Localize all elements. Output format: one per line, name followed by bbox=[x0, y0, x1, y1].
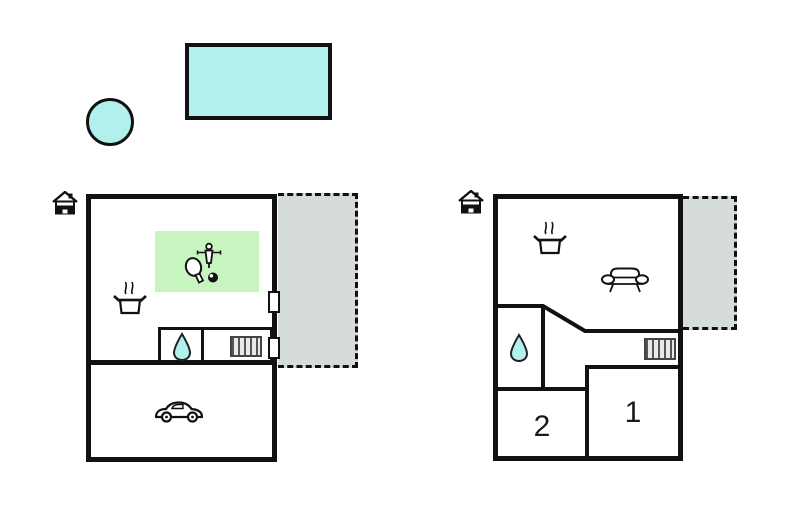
water-drop-icon bbox=[508, 333, 530, 363]
table-tennis-paddle-icon bbox=[184, 256, 203, 282]
room-label-1: 1 bbox=[618, 398, 648, 428]
room-label-2: 2 bbox=[527, 412, 557, 442]
terrace-door bbox=[268, 337, 280, 359]
swimming-pool bbox=[185, 43, 332, 120]
billiard-ball-icon bbox=[208, 273, 218, 283]
game-room-icons bbox=[184, 241, 222, 287]
house-entrance-icon bbox=[458, 190, 484, 214]
floor-plan-canvas: 1 2 bbox=[0, 0, 800, 509]
building-right-interior-walls bbox=[493, 194, 683, 461]
cooking-pot-icon bbox=[110, 279, 150, 319]
radiator-icon bbox=[644, 338, 676, 360]
cooking-pot-icon bbox=[530, 219, 570, 259]
sofa-icon bbox=[601, 263, 649, 297]
radiator-icon bbox=[230, 336, 262, 357]
car-icon bbox=[152, 395, 206, 425]
bathroom-left-divider-wall bbox=[201, 327, 204, 363]
terrace-left bbox=[278, 193, 358, 368]
water-drop-icon bbox=[171, 332, 193, 362]
house-entrance-icon bbox=[52, 191, 78, 215]
terrace-door bbox=[268, 291, 280, 313]
terrace-right bbox=[683, 196, 737, 330]
hot-tub bbox=[86, 98, 134, 146]
